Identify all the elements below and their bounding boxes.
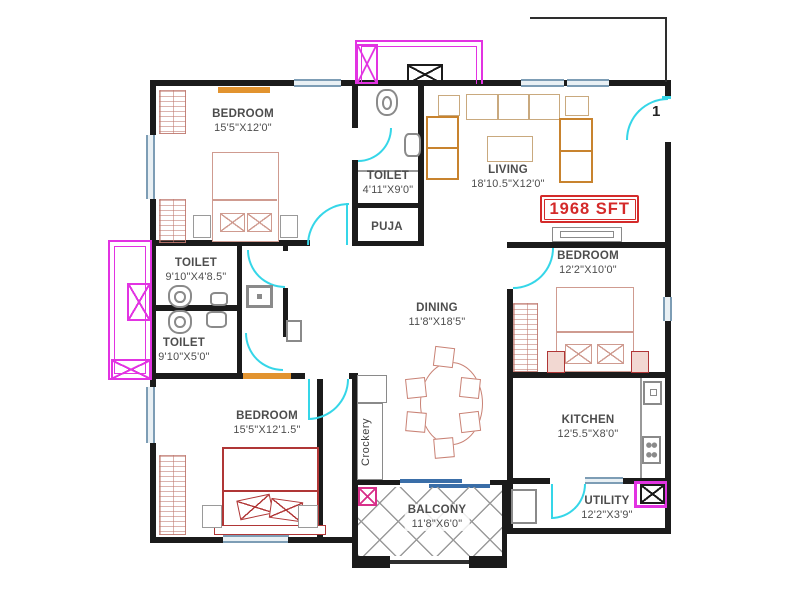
door-panel (308, 379, 310, 420)
room-name: BEDROOM (212, 108, 274, 122)
wall-segment (150, 537, 224, 543)
kitchen-sink (643, 381, 662, 405)
side-table (280, 215, 298, 238)
room-dims: 12'2"X3'9" (581, 509, 633, 523)
dining-chair (405, 411, 427, 433)
crockery-label: Crockery (360, 406, 380, 478)
room-label-kitchen: KITCHEN 12'5.5"X8'0" (557, 414, 618, 441)
sofa-divider (427, 147, 458, 149)
toilet-wc (168, 285, 192, 308)
window (585, 477, 623, 484)
parapet-line (390, 560, 469, 564)
shower-tray (246, 285, 273, 308)
room-name: UTILITY (581, 495, 633, 509)
door-panel (346, 203, 348, 245)
wall-segment (150, 199, 156, 240)
side-table (193, 215, 211, 238)
room-dims: 18'10.5"X12'0" (471, 178, 545, 192)
wall-segment (665, 82, 671, 96)
room-dims: 9'10"X5'0" (158, 351, 210, 365)
window (294, 79, 341, 87)
window (663, 297, 672, 321)
door-arc-toilet3 (245, 333, 283, 371)
door-number: 1 (652, 103, 660, 120)
wash-basin (206, 311, 227, 328)
room-label-toilet1: TOILET 4'11"X9'0" (363, 170, 414, 197)
wall-segment (418, 80, 424, 246)
room-label-utility: UTILITY 12'2"X3'9" (581, 495, 633, 522)
bed-blanket-line (213, 199, 277, 201)
sofa-divider (497, 95, 499, 119)
wall-segment (352, 80, 358, 128)
room-dims: 15'5"X12'1.5" (233, 424, 300, 438)
area-badge-text: 1968 SFT (544, 199, 636, 220)
duct-shaft (111, 359, 151, 380)
setback-line (530, 17, 667, 19)
door-arc-entrance (626, 98, 668, 140)
floor-plan: 1968 SFT Crockery BEDROOM 15'5"X12'0" (0, 0, 800, 600)
lintel (218, 87, 270, 93)
room-dims: 15'5"X12'0" (212, 122, 274, 136)
pillar (352, 556, 390, 568)
washing-machine (511, 489, 537, 524)
room-label-bedroom2: BEDROOM 12'2"X10'0" (557, 250, 619, 277)
wash-basin (286, 320, 302, 342)
door-arc-bedroom1 (307, 203, 349, 245)
room-label-living: LIVING 18'10.5"X12'0" (471, 164, 545, 191)
door-arc-toilet2 (247, 250, 285, 288)
sofa-three-seater (466, 94, 560, 120)
toilet-wc (168, 310, 192, 334)
wardrobe (159, 90, 186, 134)
room-label-toilet3: TOILET 9'10"X5'0" (158, 337, 210, 364)
corner-table (565, 96, 589, 116)
coffee-table (487, 136, 533, 162)
room-dims: 4'11"X9'0" (363, 184, 414, 198)
wall-segment (507, 478, 550, 484)
area-badge: 1968 SFT (540, 195, 639, 223)
wall-segment (237, 245, 242, 373)
stove (642, 436, 661, 464)
side-table (547, 351, 565, 373)
sofa-divider (560, 150, 592, 152)
wall-segment (507, 528, 671, 534)
room-dims: 12'2"X10'0" (557, 264, 619, 278)
wall-segment (358, 480, 400, 485)
wall-segment (150, 443, 156, 543)
door-arc-toilet1 (358, 128, 392, 162)
pillar (469, 556, 507, 568)
vent-box (407, 64, 443, 85)
wall-segment (150, 80, 294, 86)
window (567, 79, 609, 87)
side-table (202, 505, 222, 528)
window (521, 79, 564, 87)
duct-shaft (127, 283, 151, 321)
room-label-dining: DINING 11'8"X18'5" (409, 302, 466, 329)
side-table (631, 351, 649, 373)
dining-chair (459, 377, 481, 399)
window (146, 387, 155, 443)
window (146, 135, 155, 199)
room-name: TOILET (158, 337, 210, 351)
room-label-bedroom1: BEDROOM 15'5"X12'0" (212, 108, 274, 135)
room-dims: 12'5.5"X8'0" (557, 428, 618, 442)
room-name: BEDROOM (557, 250, 619, 264)
wash-basin (210, 292, 228, 306)
door-arc-bedroom3 (308, 379, 349, 420)
duct-shaft (356, 44, 378, 84)
corner-table (438, 95, 460, 116)
wall-segment (609, 80, 671, 86)
room-dims: 11'8"X18'5" (409, 316, 466, 330)
wall-segment (352, 203, 424, 208)
room-name: BALCONY (405, 504, 470, 518)
pillow (565, 344, 592, 364)
sofa-divider (528, 95, 530, 119)
bed-blanket-line (223, 490, 317, 492)
room-name: DINING (409, 302, 466, 316)
dining-chair (433, 346, 455, 368)
wardrobe (513, 303, 538, 372)
wall-segment (352, 241, 424, 246)
tv-unit-inner (560, 231, 614, 238)
room-dims: 11'8"X6'0" (405, 518, 470, 532)
dining-chair (405, 377, 427, 399)
room-name: LIVING (471, 164, 545, 178)
door-panel (662, 96, 671, 99)
wash-basin (404, 133, 421, 157)
door-arc-bedroom2 (513, 248, 554, 289)
dining-chair (459, 411, 481, 433)
room-label-balcony: BALCONY 11'8"X6'0" (405, 504, 470, 531)
sliding-window (400, 479, 462, 483)
wall-segment (150, 80, 156, 135)
room-name: BEDROOM (233, 410, 300, 424)
dining-table (420, 362, 483, 445)
bed-blanket-line (557, 331, 633, 333)
crockery-cabinet (357, 375, 387, 403)
room-label-toilet2: TOILET 9'10"X4'8.5" (165, 257, 226, 284)
room-name: KITCHEN (557, 414, 618, 428)
door-panel (551, 484, 553, 519)
side-table (298, 505, 318, 528)
room-dims: 9'10"X4'8.5" (165, 271, 226, 285)
wardrobe (159, 455, 186, 535)
wardrobe (159, 199, 186, 243)
wall-segment (150, 305, 242, 311)
pillow (597, 344, 624, 364)
room-label-bedroom3: BEDROOM 15'5"X12'1.5" (233, 410, 300, 437)
pillow (247, 213, 272, 232)
toilet-wc (376, 89, 398, 116)
room-label-puja: PUJA (371, 221, 403, 235)
pillow (220, 213, 245, 232)
setback-line (665, 17, 667, 82)
room-name: PUJA (371, 221, 403, 235)
lintel (243, 373, 291, 379)
dining-chair (433, 437, 455, 459)
window (223, 535, 289, 543)
duct-shaft (640, 484, 665, 504)
duct-shaft (358, 487, 377, 506)
room-name: TOILET (363, 170, 414, 184)
wall-segment (665, 142, 671, 297)
room-name: TOILET (165, 257, 226, 271)
